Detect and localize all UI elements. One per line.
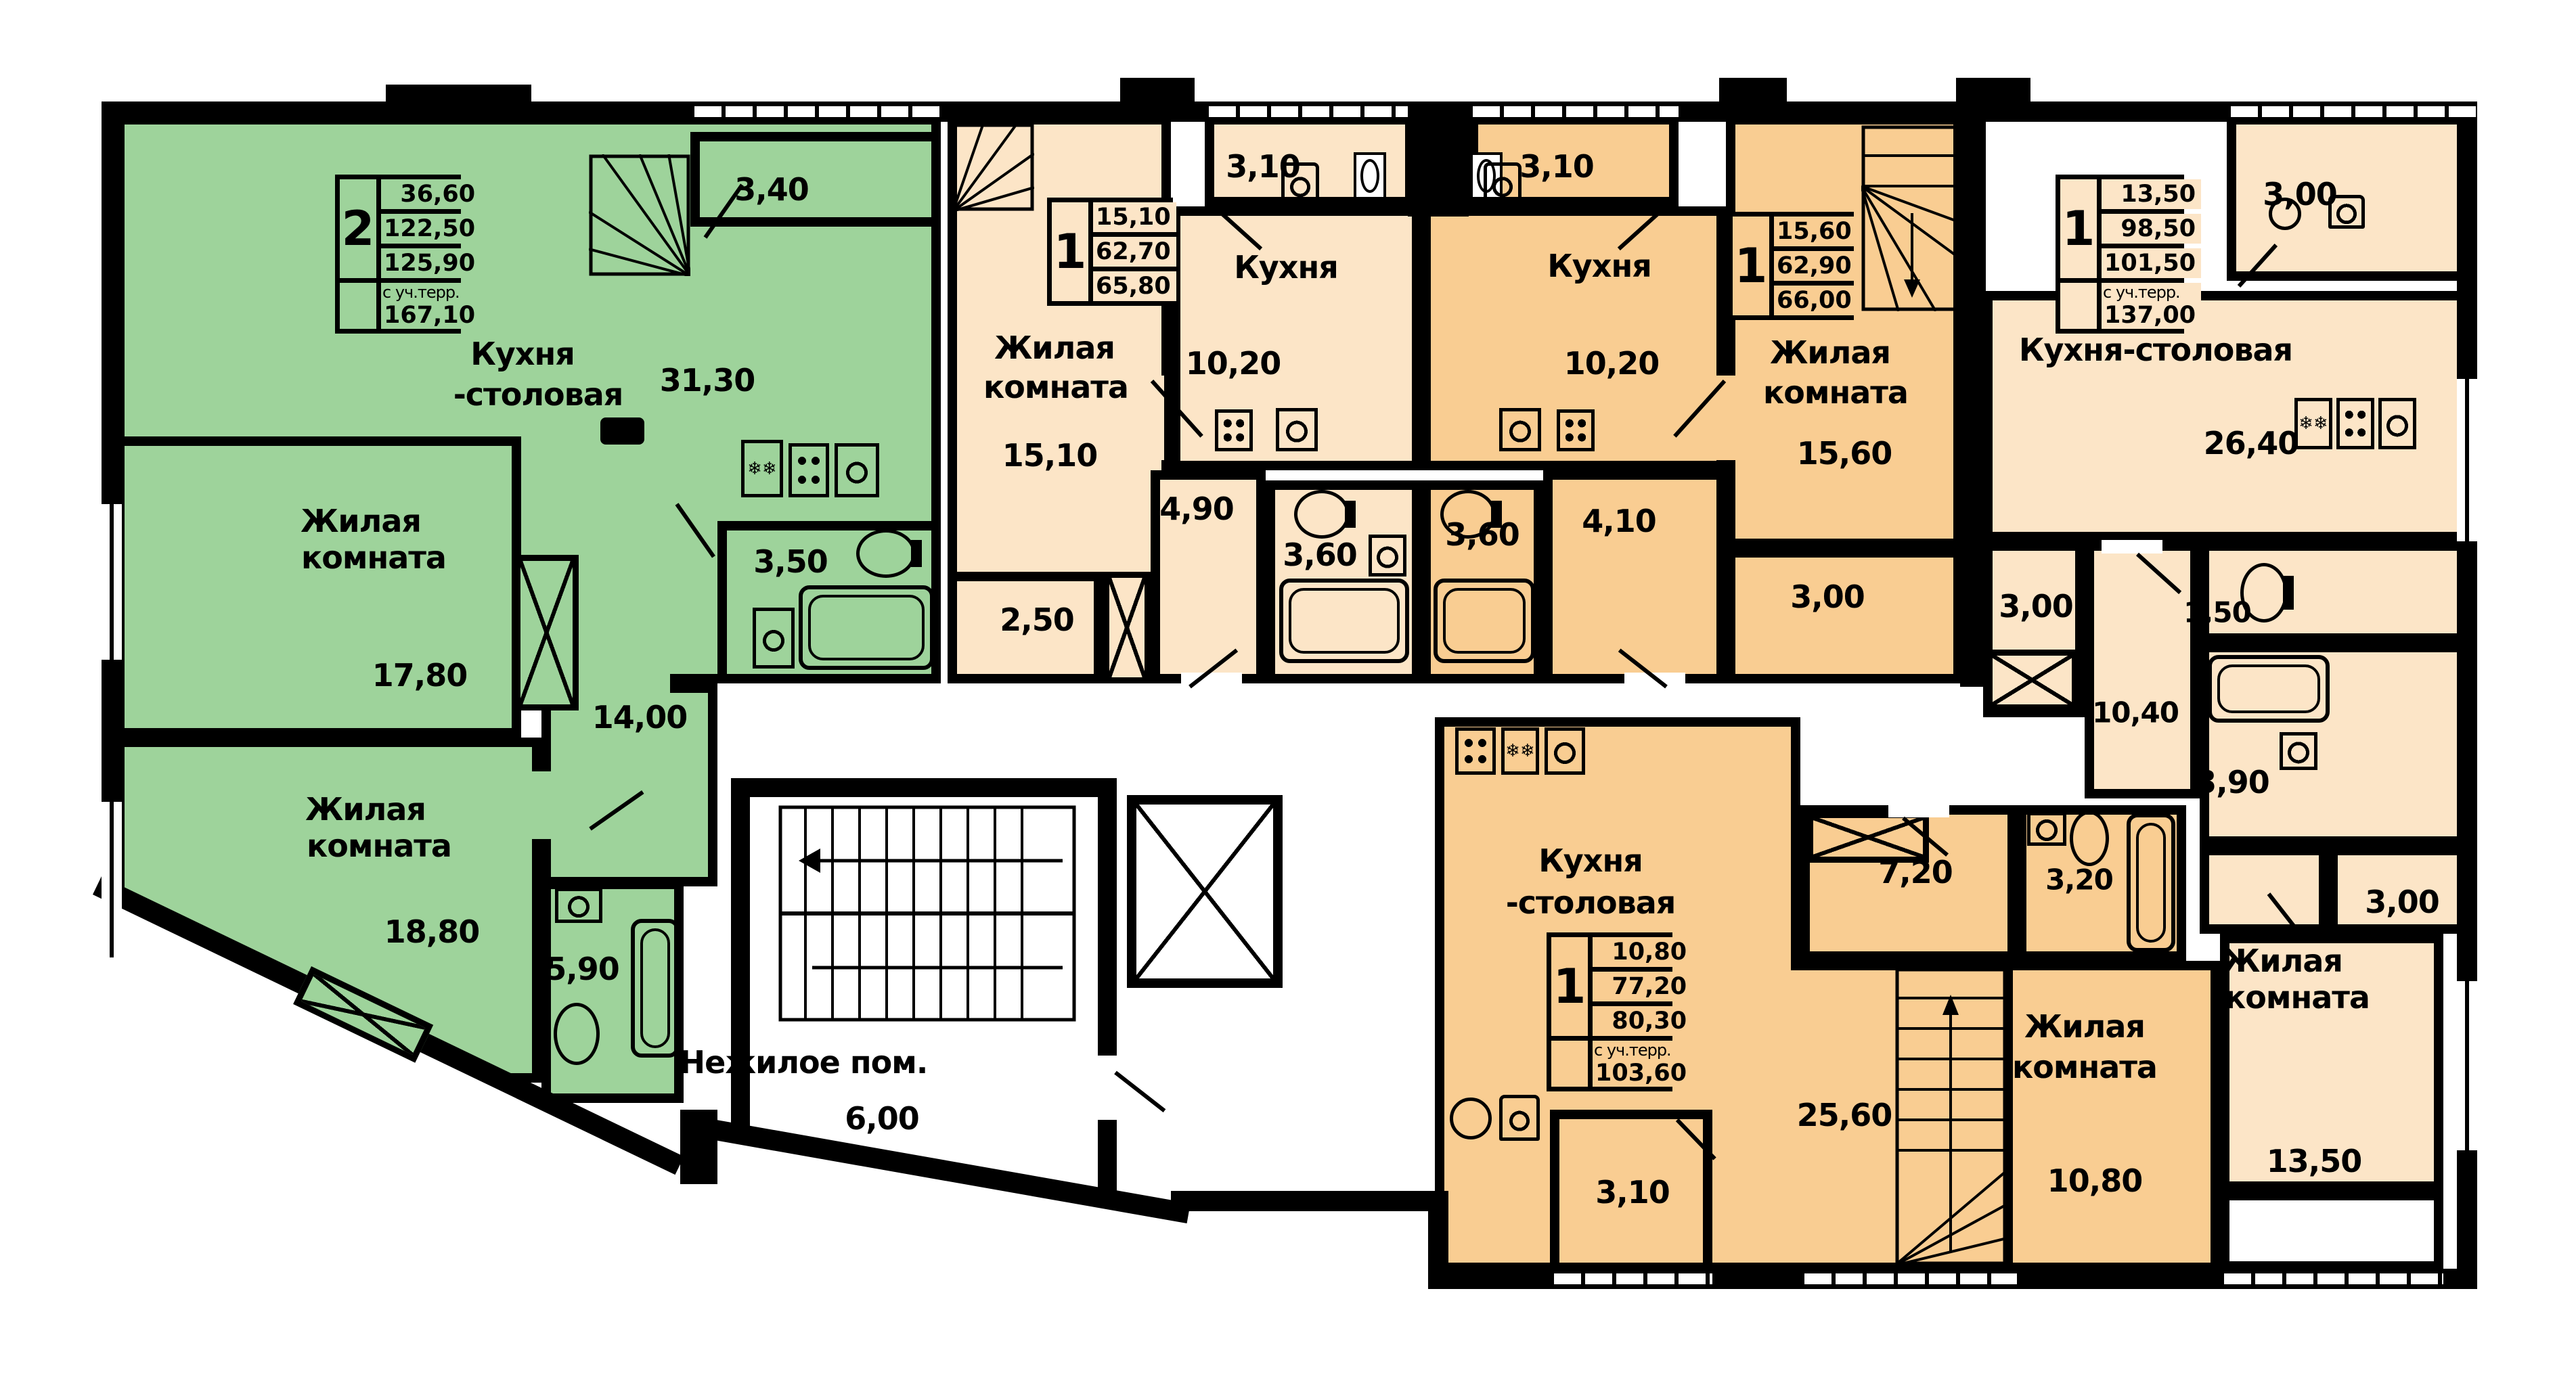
room-area: 3,00 [1999, 588, 2073, 625]
bathtub-icon [631, 919, 680, 1058]
living-area-value: 10,80 [1593, 937, 1692, 967]
railing-cream2-balcony-bottom [2220, 1270, 2443, 1288]
room-area: 3,50 [753, 543, 828, 580]
terrace-note: с уч.терр. [2102, 283, 2201, 302]
bathtub-icon [2208, 655, 2330, 723]
apartment-room-count: 1 [2060, 179, 2097, 278]
room-area: 1,50 [2183, 596, 2251, 629]
room-area: 25,60 [1797, 1097, 1892, 1133]
room-orange2-living [2003, 961, 2220, 1272]
fridge-icon: ❄❄ [2294, 398, 2332, 449]
room-label: Кухня [1234, 249, 1338, 286]
stove-icon [2336, 398, 2374, 449]
room-area: 4,90 [1159, 491, 1234, 527]
fridge-icon: ❄❄ [741, 440, 783, 497]
room-label: Жилая [994, 330, 1115, 366]
room-cream2-hall [2085, 541, 2200, 798]
wall-pier-4 [1956, 78, 2030, 122]
staircase-orange2 [1895, 968, 2007, 1265]
room-label: Кухня-столовая [2019, 332, 2292, 368]
balcony-pillar [1408, 101, 1469, 217]
total-area-value: 77,20 [1593, 972, 1692, 1001]
sink-icon [2280, 732, 2317, 770]
wall-bottom-middle [1171, 1191, 1448, 1211]
door-leaf [1114, 1071, 1165, 1112]
railing-cream1-balcony [1205, 103, 1408, 120]
stove-icon [1455, 727, 1496, 775]
door-gap-orange2-entry [1888, 804, 1949, 817]
window-green-living2 [102, 802, 122, 957]
room-area: 3,20 [2045, 863, 2113, 897]
total-area-value: 122,50 [381, 214, 481, 244]
living-area-value: 36,60 [381, 179, 481, 209]
living-area-value: 15,10 [1093, 202, 1176, 232]
total-with-balcony-value: 80,30 [1593, 1006, 1692, 1036]
apartment-room-count: 1 [1733, 217, 1769, 315]
apartment-room-count: 1 [1052, 202, 1088, 301]
room-label: комната [1763, 374, 1908, 411]
wall-stairwell-right [1098, 778, 1117, 1191]
room-area: 2,50 [1000, 602, 1074, 638]
shaft-cream2-wardrobe [1986, 650, 2078, 710]
staircase-green-winder [589, 154, 690, 276]
room-label: Жилая [305, 791, 426, 828]
sink-icon [2378, 398, 2416, 449]
stove-icon [1557, 409, 1595, 451]
room-label: Жилая [2222, 943, 2342, 979]
room-label: комната [307, 828, 451, 864]
total-area-value: 62,70 [1093, 237, 1176, 267]
door-gap-cream2-entry [2102, 540, 2162, 553]
wall-pier-1 [386, 85, 531, 122]
sink-icon [753, 608, 795, 669]
room-area: 13,50 [2267, 1143, 2362, 1179]
info-box-cream1-apartment: 1 15,10 62,70 65,80 [1047, 198, 1173, 306]
nonresidential-area: 6,00 [845, 1100, 919, 1137]
shaft-cream1 [1103, 572, 1151, 683]
stove-icon [789, 443, 829, 497]
toilet-icon [856, 529, 916, 578]
total-area-value: 98,50 [2102, 214, 2201, 244]
room-label: Жилая [2024, 1008, 2145, 1045]
room-area: 3,10 [1595, 1174, 1670, 1211]
room-label: -столовая [1506, 884, 1676, 921]
room-label: комната [2225, 979, 2370, 1016]
room-orange1-closet [1726, 548, 1963, 683]
terrace-note: с уч.терр. [1593, 1041, 1692, 1060]
wall-stairwell-left [731, 778, 750, 1137]
room-area: 3,00 [2365, 884, 2439, 920]
room-area: 3,60 [1283, 537, 1357, 573]
total-with-balcony-value: 101,50 [2102, 248, 2201, 278]
railing-orange2-bottom [1800, 1270, 2017, 1288]
toilet-icon [1294, 490, 1350, 539]
toilet-icon [2070, 811, 2109, 866]
apartment-room-count: 1 [1551, 937, 1588, 1036]
sink-icon [555, 888, 602, 923]
room-area: 17,80 [372, 657, 468, 694]
terrace-note: с уч.терр. [381, 283, 481, 302]
terrace-total-value: 103,60 [1593, 1060, 1692, 1087]
room-area: 14,00 [592, 699, 688, 736]
staircase-cream1-winder [953, 123, 1034, 211]
bathtub-icon [1279, 579, 1409, 663]
total-with-balcony-value: 65,80 [1093, 271, 1176, 301]
room-cream2-hall-extension [2200, 846, 2328, 934]
toilet-icon [554, 1003, 600, 1065]
terrace-total-value: 137,00 [2102, 302, 2201, 329]
room-area: 7,20 [1878, 854, 1953, 890]
wall-left [102, 101, 122, 890]
info-box-cream2-apartment: 1 13,50 98,50 101,50 с уч.терр. 137,00 [2056, 175, 2184, 334]
boiler-icon [1450, 1098, 1492, 1139]
terrace-total-value: 167,10 [381, 302, 481, 329]
sink-icon [1276, 408, 1318, 451]
opening-green-kitchen-corridor [575, 673, 670, 702]
staircase-orange1-winder [1861, 125, 1963, 311]
wall-pier-2 [1120, 78, 1195, 122]
opening-green-corridor-room2 [531, 771, 552, 839]
stove-icon [1215, 409, 1253, 451]
room-area: 10,20 [1564, 345, 1660, 382]
door-gap-nonresidential [1098, 1056, 1117, 1120]
room-area: 10,40 [2092, 696, 2179, 729]
room-area: 15,10 [1002, 437, 1098, 474]
room-label: -столовая [453, 376, 623, 413]
wall-stairwell-top [731, 778, 1117, 797]
room-area: 3,40 [734, 171, 809, 208]
info-box-green-apartment: 2 36,60 122,50 125,90 с уч.терр. 167,10 [335, 175, 461, 334]
total-with-balcony-value: 125,90 [381, 248, 481, 278]
room-label: Кухня [470, 336, 575, 372]
info-box-orange2-apartment: 1 10,80 77,20 80,30 с уч.терр. 103,60 [1547, 932, 1672, 1091]
window-cream2-kitchen [2457, 379, 2477, 541]
railing-orange2-balcony [1550, 1270, 1712, 1288]
info-box-orange1-apartment: 1 15,60 62,90 66,00 [1728, 212, 1854, 320]
room-label: Жилая [1770, 334, 1890, 371]
railing-orange1-balcony [1469, 103, 1679, 120]
railing-green-balcony [690, 103, 941, 120]
room-label: Кухня [1538, 842, 1643, 879]
window-cream2-living [2457, 981, 2477, 1150]
bathtub-icon [1434, 579, 1535, 663]
sink-icon [1369, 535, 1406, 577]
room-label: комната [2012, 1049, 2157, 1085]
bathtub-icon [2127, 813, 2175, 952]
room-label: комната [983, 369, 1128, 405]
room-green-balcony [690, 132, 941, 227]
room-area: 3,90 [2195, 764, 2269, 800]
railing-cream2-balcony-top [2227, 103, 2477, 120]
wall-apartment-divider [1960, 115, 1986, 687]
bathtub-icon [799, 585, 934, 670]
room-area: 4,10 [1582, 503, 1656, 539]
apartment-room-count: 2 [340, 179, 376, 278]
elevator-shaft [1127, 795, 1283, 988]
wall-diagonal-connector [680, 1110, 717, 1184]
sink-icon [835, 443, 879, 497]
kitchen-island [600, 417, 644, 445]
shaft-green-column [514, 555, 579, 710]
washing-machine-icon [1499, 1095, 1540, 1141]
room-area: 10,80 [2047, 1162, 2143, 1199]
sink-icon [1499, 408, 1541, 451]
room-area: 31,30 [660, 362, 755, 399]
nonresidential-label: Нежилое пом. [680, 1044, 928, 1081]
living-area-value: 15,60 [1774, 217, 1857, 246]
fridge-icon: ❄❄ [1501, 727, 1539, 775]
room-label: комната [301, 539, 446, 576]
window-green-living1 [102, 504, 122, 660]
sink-icon [2027, 812, 2066, 846]
room-area: 3,10 [1226, 148, 1300, 185]
room-area: 3,00 [2263, 176, 2337, 212]
sink-icon [1545, 727, 1585, 775]
room-area: 26,40 [2204, 425, 2299, 461]
washing-machine-icon [1484, 162, 1522, 206]
room-label: Кухня [1547, 248, 1651, 284]
room-area: 5,90 [545, 951, 619, 987]
room-area: 15,60 [1797, 435, 1892, 472]
living-area-value: 13,50 [2102, 179, 2201, 209]
room-cream2-balcony-bottom [2220, 1191, 2443, 1271]
room-label: Жилая [301, 503, 421, 539]
room-area: 10,20 [1186, 345, 1281, 382]
round-window-left [1354, 152, 1386, 200]
total-area-value: 62,90 [1774, 251, 1857, 281]
room-area: 3,10 [1519, 148, 1594, 185]
floor-plan: ❄❄ ❄❄ ❄❄ 2 36,60 122,50 125,90 с уч.терр… [0, 0, 2576, 1379]
room-area: 18,80 [384, 913, 480, 950]
total-with-balcony-value: 66,00 [1774, 286, 1857, 315]
room-area: 3,60 [1445, 516, 1519, 553]
room-area: 3,00 [1790, 579, 1865, 615]
wall-pier-3 [1719, 78, 1787, 122]
staircase-main [778, 805, 1076, 1022]
